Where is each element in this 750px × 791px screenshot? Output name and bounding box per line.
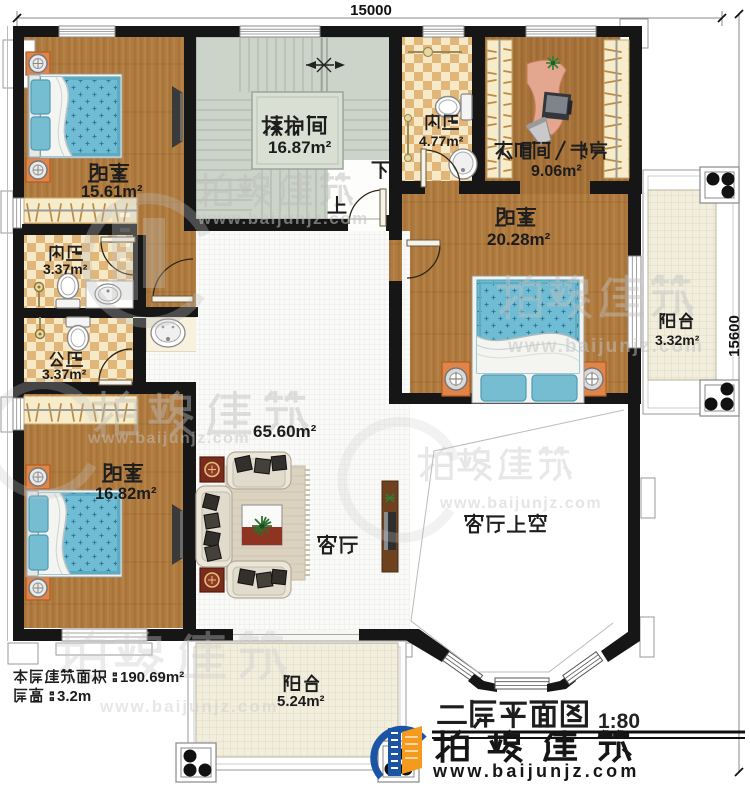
svg-text:16.82m²: 16.82m²	[95, 485, 157, 503]
svg-text:15.61m²: 15.61m²	[81, 183, 143, 201]
svg-text:www.baijunjz.com: www.baijunjz.com	[432, 761, 640, 781]
svg-text:www.baijunjz.com: www.baijunjz.com	[99, 697, 279, 716]
svg-text:20.28m²: 20.28m²	[487, 230, 551, 249]
svg-text:9.06m²: 9.06m²	[531, 163, 582, 180]
svg-text:3.2m: 3.2m	[57, 688, 91, 705]
svg-text:www.baijunjz.com: www.baijunjz.com	[439, 495, 602, 512]
svg-text:1:80: 1:80	[598, 710, 640, 733]
svg-text:3.32m²: 3.32m²	[655, 332, 700, 348]
svg-text:5.24m²: 5.24m²	[277, 693, 325, 710]
svg-text:3.37m²: 3.37m²	[43, 261, 88, 277]
svg-text:4.77m²: 4.77m²	[419, 133, 464, 149]
svg-text:190.69m²: 190.69m²	[120, 669, 184, 686]
svg-text:3.37m²: 3.37m²	[42, 366, 87, 382]
svg-text:15000: 15000	[350, 2, 392, 19]
svg-text:15600: 15600	[726, 315, 743, 357]
svg-text:65.60m²: 65.60m²	[253, 422, 317, 441]
svg-text:16.87m²: 16.87m²	[268, 138, 332, 157]
svg-text:www.baijunjz.com: www.baijunjz.com	[87, 430, 250, 447]
